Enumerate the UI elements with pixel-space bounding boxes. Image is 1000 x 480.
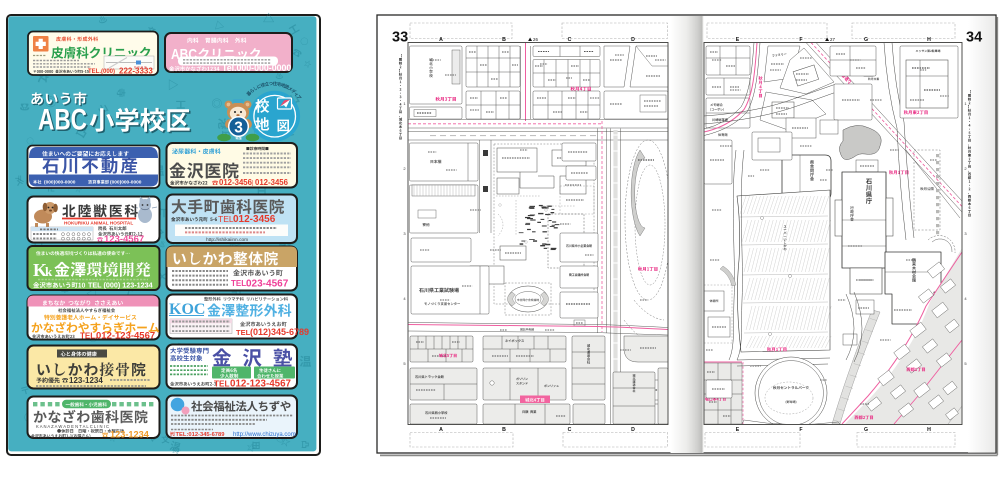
svg-text:C: C — [568, 427, 572, 433]
svg-text:http://www.chizuya.com: http://www.chizuya.com — [233, 432, 296, 438]
svg-text:(000)000-0000: (000)000-0000 — [44, 180, 76, 186]
svg-text:B: B — [502, 427, 506, 433]
svg-text:B: B — [502, 37, 506, 43]
svg-text:D: D — [631, 427, 635, 433]
svg-text:TEL.(000): TEL.(000) — [88, 69, 115, 75]
svg-text:(000)000-0000: (000)000-0000 — [110, 180, 142, 186]
svg-text:HOKURIKU ANIMAL HOSPITAL: HOKURIKU ANIMAL HOSPITAL — [64, 221, 133, 226]
svg-text:K A N A Z A W A D E N T A L: K A N A Z A W A D E N T A L C L I N I C — [36, 424, 109, 429]
svg-text:http://ishikaiinn.com: http://ishikaiinn.com — [206, 237, 248, 243]
svg-text:TEL: TEL — [214, 380, 229, 389]
svg-text:G: G — [864, 427, 868, 433]
svg-text:(012)345-6789: (012)345-6789 — [250, 327, 309, 337]
svg-text:ABC: ABC — [38, 104, 87, 137]
svg-text:123-1234: 123-1234 — [110, 430, 150, 440]
svg-text:A: A — [439, 427, 443, 433]
svg-text:G: G — [864, 37, 868, 43]
svg-text:E: E — [736, 427, 740, 433]
svg-text:k: k — [45, 264, 53, 279]
svg-text:H: H — [927, 427, 931, 433]
svg-text:012-123-4567: 012-123-4567 — [96, 331, 155, 342]
svg-text:A: A — [439, 37, 443, 43]
svg-text:222-3333: 222-3333 — [119, 67, 153, 76]
svg-text:C: C — [568, 37, 572, 43]
svg-text:27: 27 — [830, 37, 835, 42]
svg-text:F: F — [799, 37, 802, 43]
svg-text:012-3456: 012-3456 — [255, 178, 289, 187]
svg-text:TEL.: TEL. — [80, 332, 97, 341]
svg-text:012-123-4567: 012-123-4567 — [230, 379, 292, 390]
svg-text:E: E — [736, 37, 740, 43]
svg-text:012-3456: 012-3456 — [219, 178, 253, 187]
svg-text:TEL:012-345-6789: TEL:012-345-6789 — [176, 432, 226, 438]
svg-text:TEL (000) 123-1234: TEL (000) 123-1234 — [88, 281, 153, 290]
svg-text:34: 34 — [966, 30, 982, 46]
svg-text:123-1234: 123-1234 — [69, 376, 103, 385]
svg-text:023-4567: 023-4567 — [246, 279, 289, 290]
svg-text:26: 26 — [533, 37, 538, 42]
svg-text:123-4567: 123-4567 — [104, 234, 144, 245]
svg-text:TEL: TEL — [236, 328, 251, 337]
svg-text:Tel.000-000-0000: Tel.000-000-0000 — [222, 63, 291, 73]
svg-text:D: D — [631, 37, 635, 43]
svg-text:33: 33 — [392, 30, 408, 46]
svg-text:3: 3 — [234, 120, 243, 137]
svg-text:012-3456: 012-3456 — [233, 214, 276, 225]
svg-text:F: F — [799, 427, 802, 433]
svg-text:H: H — [927, 37, 931, 43]
svg-text:TEL: TEL — [218, 214, 234, 224]
